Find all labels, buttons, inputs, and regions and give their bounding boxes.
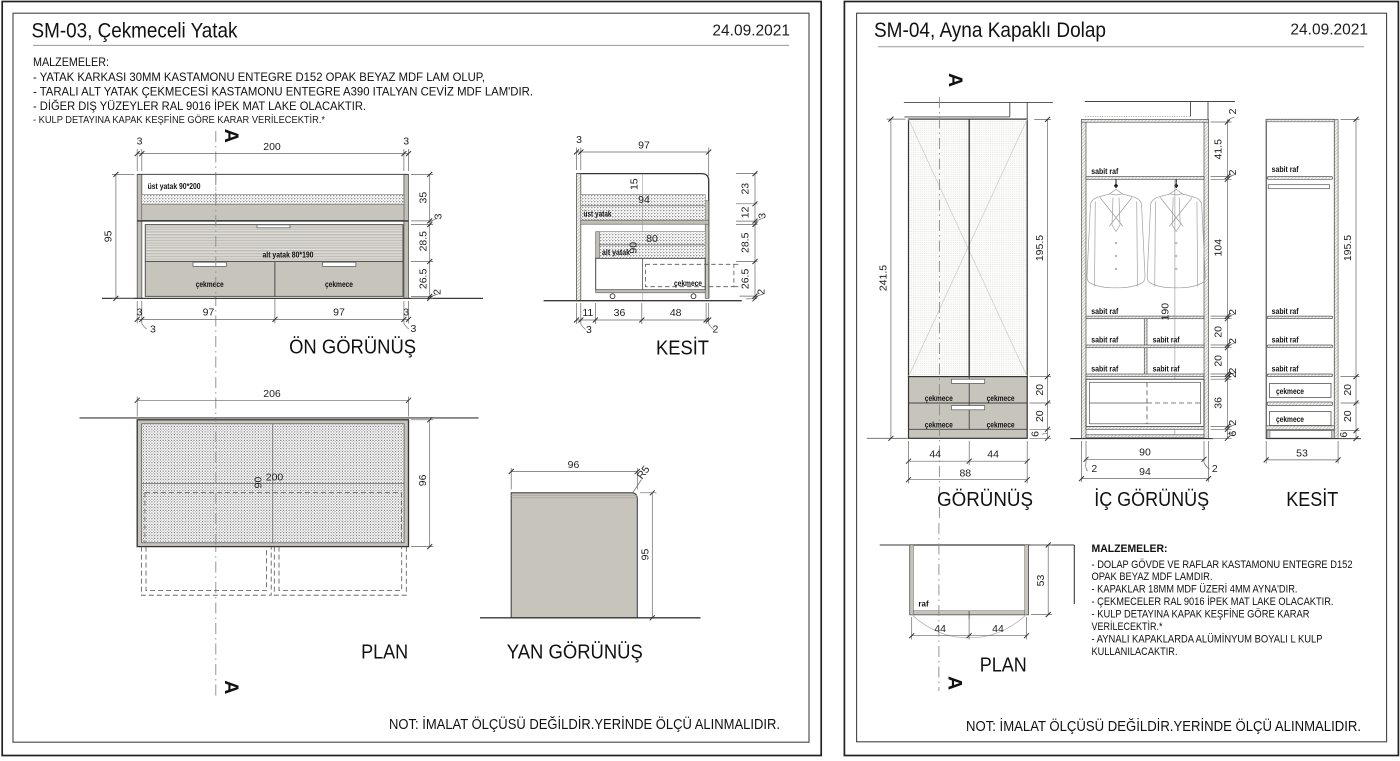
- svg-text:PLAN: PLAN: [361, 641, 408, 663]
- svg-text:sabit raf: sabit raf: [1153, 336, 1180, 345]
- svg-text:sabit raf: sabit raf: [1272, 365, 1299, 374]
- svg-text:ÖN GÖRÜNÜŞ: ÖN GÖRÜNÜŞ: [289, 337, 416, 359]
- svg-text:alt yatak: alt yatak: [602, 248, 630, 257]
- svg-text:çekmece: çekmece: [987, 394, 1015, 403]
- svg-text:28.5: 28.5: [418, 231, 430, 252]
- svg-text:MALZEMELER:: MALZEMELER:: [33, 56, 109, 69]
- svg-text:2: 2: [1227, 420, 1239, 426]
- svg-text:12: 12: [740, 206, 752, 218]
- svg-text:sabit raf: sabit raf: [1153, 365, 1180, 374]
- svg-text:20: 20: [1213, 326, 1225, 338]
- svg-text:3: 3: [137, 136, 143, 148]
- svg-text:96: 96: [568, 459, 580, 471]
- svg-text:MALZEMELER:: MALZEMELER:: [1092, 543, 1168, 555]
- svg-text:23: 23: [740, 183, 752, 195]
- svg-text:90: 90: [1139, 447, 1151, 459]
- svg-text:6: 6: [1030, 431, 1042, 437]
- svg-text:195.5: 195.5: [1034, 235, 1046, 261]
- svg-text:3: 3: [150, 324, 156, 336]
- svg-text:20: 20: [1342, 410, 1354, 422]
- svg-text:24.09.2021: 24.09.2021: [712, 23, 790, 40]
- svg-text:35: 35: [418, 192, 430, 204]
- svg-text:- DİĞER DIŞ YÜZEYLER RAL 9016: - DİĞER DIŞ YÜZEYLER RAL 9016 İPEK MAT L…: [33, 100, 366, 113]
- svg-text:44: 44: [934, 623, 946, 635]
- svg-text:200: 200: [266, 472, 284, 484]
- svg-text:2: 2: [1227, 309, 1239, 315]
- svg-text:26.5: 26.5: [418, 269, 430, 290]
- svg-text:97: 97: [333, 306, 345, 318]
- svg-text:- YATAK KARKASI 30MM KASTAMONU: - YATAK KARKASI 30MM KASTAMONU ENTEGRE D…: [33, 71, 485, 84]
- svg-text:44: 44: [987, 448, 999, 460]
- svg-text:26.5: 26.5: [740, 269, 752, 290]
- svg-text:KULLANILACAKTIR.: KULLANILACAKTIR.: [1092, 646, 1178, 658]
- svg-text:3: 3: [757, 213, 769, 219]
- svg-text:94: 94: [638, 194, 650, 206]
- svg-text:sabit raf: sabit raf: [1091, 365, 1118, 374]
- svg-text:İÇ GÖRÜNÜŞ: İÇ GÖRÜNÜŞ: [1094, 488, 1209, 511]
- svg-text:çekmece: çekmece: [925, 394, 953, 403]
- svg-text:- ÇEKMECELER RAL 9016 İPEK MAT: - ÇEKMECELER RAL 9016 İPEK MAT LAKE OLAC…: [1092, 595, 1334, 608]
- svg-text:A: A: [220, 680, 242, 694]
- svg-text:KESİT: KESİT: [1286, 488, 1338, 511]
- svg-text:2: 2: [1227, 169, 1239, 175]
- svg-text:20: 20: [1034, 384, 1046, 396]
- svg-text:28.5: 28.5: [740, 232, 752, 253]
- svg-text:çekmece: çekmece: [325, 280, 353, 289]
- svg-text:24.09.2021: 24.09.2021: [1290, 22, 1368, 39]
- svg-text:6: 6: [1338, 432, 1350, 438]
- svg-text:3: 3: [403, 136, 409, 148]
- svg-text:241.5: 241.5: [878, 265, 890, 291]
- svg-text:15: 15: [629, 178, 641, 190]
- svg-text:2: 2: [1091, 463, 1097, 475]
- svg-text:3: 3: [576, 134, 582, 146]
- svg-text:sabit raf: sabit raf: [1272, 336, 1299, 345]
- svg-text:3: 3: [586, 324, 592, 336]
- svg-text:36: 36: [614, 307, 626, 319]
- svg-text:GÖRÜNÜŞ: GÖRÜNÜŞ: [937, 489, 1033, 511]
- svg-text:195.5: 195.5: [1342, 235, 1354, 261]
- svg-text:SM-04, Ayna Kapaklı Dolap: SM-04, Ayna Kapaklı Dolap: [874, 19, 1106, 42]
- svg-text:44: 44: [929, 448, 941, 460]
- svg-text:PLAN: PLAN: [980, 655, 1027, 677]
- svg-text:90: 90: [628, 242, 640, 254]
- svg-text:çekmece: çekmece: [196, 280, 224, 289]
- svg-text:20: 20: [1213, 355, 1225, 367]
- svg-text:96: 96: [417, 474, 429, 486]
- svg-text:20: 20: [1034, 410, 1046, 422]
- svg-text:206: 206: [263, 388, 281, 400]
- svg-text:3: 3: [411, 323, 417, 335]
- svg-text:48: 48: [670, 307, 682, 319]
- svg-text:36: 36: [1213, 397, 1225, 409]
- svg-text:2: 2: [1227, 108, 1239, 114]
- svg-text:2: 2: [1212, 463, 1218, 475]
- svg-text:- KULP DETAYINA KAPAK KEŞFİNE: - KULP DETAYINA KAPAK KEŞFİNE GÖRE KARAR: [1092, 608, 1310, 621]
- svg-text:SM-03, Çekmeceli Yatak: SM-03, Çekmeceli Yatak: [32, 19, 238, 42]
- svg-text:53: 53: [1296, 447, 1308, 459]
- svg-text:üst yatak 90*200: üst yatak 90*200: [148, 182, 201, 191]
- svg-text:NOT: İMALAT ÖLÇÜSÜ DEĞİLDİR.YE: NOT: İMALAT ÖLÇÜSÜ DEĞİLDİR.YERİNDE ÖLÇÜ…: [966, 717, 1361, 735]
- svg-text:20: 20: [1342, 384, 1354, 396]
- svg-text:çekmece: çekmece: [1276, 387, 1304, 396]
- svg-text:çekmece: çekmece: [987, 420, 1015, 429]
- svg-text:raf: raf: [918, 600, 929, 609]
- svg-text:97: 97: [638, 140, 650, 152]
- svg-text:2: 2: [756, 289, 768, 295]
- svg-text:sabit raf: sabit raf: [1091, 307, 1118, 316]
- svg-text:3: 3: [137, 306, 143, 318]
- svg-text:A: A: [220, 129, 242, 143]
- svg-text:94: 94: [1139, 466, 1151, 478]
- svg-text:6: 6: [1227, 431, 1239, 437]
- svg-text:41.5: 41.5: [1213, 139, 1225, 160]
- svg-text:80: 80: [646, 233, 658, 245]
- svg-text:3: 3: [433, 213, 445, 219]
- svg-text:200: 200: [263, 141, 281, 153]
- svg-text:YAN GÖRÜNÜŞ: YAN GÖRÜNÜŞ: [507, 642, 643, 664]
- svg-text:NOT: İMALAT ÖLÇÜSÜ DEĞİLDİR.YE: NOT: İMALAT ÖLÇÜSÜ DEĞİLDİR.YERİNDE ÖLÇÜ…: [389, 715, 780, 733]
- svg-text:3: 3: [403, 306, 409, 318]
- svg-text:A: A: [943, 676, 965, 690]
- svg-text:- AYNALI KAPAKLARDA ALÜMİNYUM: - AYNALI KAPAKLARDA ALÜMİNYUM BOYALI L K…: [1092, 633, 1323, 646]
- svg-text:11: 11: [582, 307, 593, 319]
- svg-text:2: 2: [1227, 372, 1239, 378]
- svg-text:çekmece: çekmece: [674, 279, 702, 288]
- svg-text:- KULP DETAYINA KAPAK KEŞFİNE: - KULP DETAYINA KAPAK KEŞFİNE GÖRE KARAR…: [33, 113, 325, 126]
- svg-text:sabit raf: sabit raf: [1091, 167, 1118, 176]
- svg-text:- KAPAKLAR 18MM MDF ÜZERİ 4MM: - KAPAKLAR 18MM MDF ÜZERİ 4MM AYNA'DIR.: [1092, 583, 1298, 596]
- svg-text:sabit raf: sabit raf: [1272, 307, 1299, 316]
- svg-text:alt yatak 80*190: alt yatak 80*190: [263, 251, 314, 260]
- svg-text:44: 44: [992, 623, 1004, 635]
- svg-text:2: 2: [1227, 338, 1239, 344]
- svg-text:A: A: [944, 73, 966, 87]
- svg-text:95: 95: [640, 549, 652, 561]
- svg-text:- TARALI ALT YATAK ÇEKMECESİ: - TARALI ALT YATAK ÇEKMECESİ KASTAMONU E…: [33, 86, 533, 99]
- svg-text:190: 190: [1159, 303, 1171, 321]
- svg-text:KESİT: KESİT: [656, 336, 709, 359]
- svg-text:çekmece: çekmece: [1276, 415, 1304, 424]
- svg-text:95: 95: [103, 230, 115, 242]
- svg-text:üst yatak: üst yatak: [584, 209, 612, 218]
- svg-text:2: 2: [713, 323, 719, 335]
- svg-text:sabit raf: sabit raf: [1091, 336, 1118, 345]
- svg-text:OPAK BEYAZ MDF LAMDIR.: OPAK BEYAZ MDF LAMDIR.: [1092, 571, 1213, 583]
- svg-text:97: 97: [203, 306, 215, 318]
- svg-text:VERİLECEKTİR.*: VERİLECEKTİR.*: [1092, 620, 1164, 633]
- svg-text:90: 90: [253, 477, 265, 489]
- svg-text:2: 2: [432, 289, 444, 295]
- svg-text:sabit raf: sabit raf: [1272, 165, 1299, 174]
- svg-text:88: 88: [959, 467, 971, 479]
- svg-text:104: 104: [1213, 239, 1225, 257]
- svg-text:- DOLAP GÖVDE VE RAFLAR KASTA: - DOLAP GÖVDE VE RAFLAR KASTAMONU ENTEGR…: [1092, 559, 1353, 571]
- svg-text:53: 53: [1035, 575, 1047, 587]
